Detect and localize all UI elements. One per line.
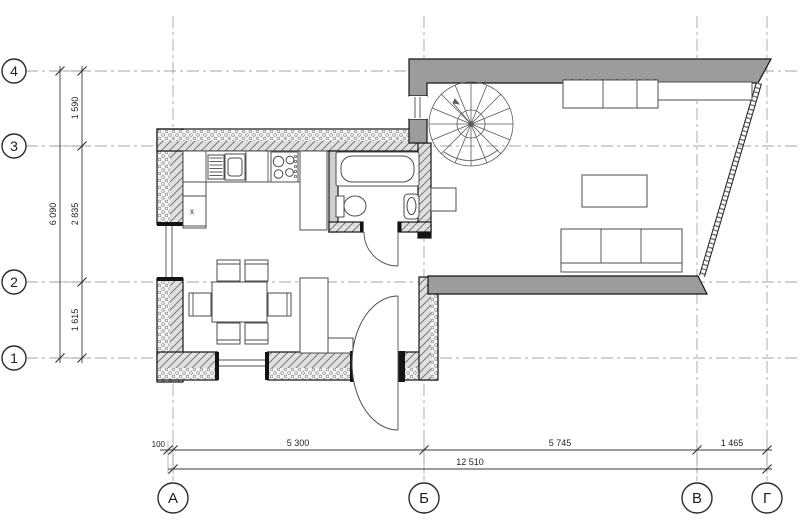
glazed-wall-tick-band [702,83,759,276]
toilet-tank [336,196,344,217]
bathroom-east-wall-cap [418,232,431,238]
spiral-stair-arrow-line [453,103,471,124]
living-room-furniture [431,80,752,272]
axis-label-4: 4 [10,63,18,79]
stove-burner-3 [274,170,283,179]
toilet-bowl [344,196,366,216]
entry-bench [328,338,353,353]
wall-shelf [431,188,456,211]
wall-top-hatch [157,141,420,151]
axis-label-v: В [692,490,702,507]
window-west-gap [156,225,185,278]
bathroom [329,143,431,266]
dim-h-seg-3: 1 465 [721,438,744,448]
floor-plan-svg: x [0,0,800,530]
dining-chair-right [268,293,291,316]
dim-h-offset: 100 [152,440,166,449]
entry-wardrobe [300,278,328,353]
dining-chair-bottom-1 [217,323,240,344]
bathroom-wall-south-right [398,222,431,232]
bathroom-door-arc [364,232,398,266]
axis-label-g: Г [763,490,771,507]
dim-h-seg-1: 5 300 [287,438,310,448]
sofa [561,229,682,272]
floor-plan-canvas: x [0,0,800,530]
entry-door-jamb-right [399,351,406,382]
stove-burner-1 [273,156,283,166]
bathroom-door-jamb-left [360,222,364,232]
window-west-cap-top [157,222,183,226]
bathroom-door-jamb-right [398,222,402,232]
dining-table [212,282,267,322]
dimensions-left: 6 090 1 590 2 835 1 615 [48,66,90,363]
wall-living-south [428,276,707,294]
sink-basin-inner [228,158,242,176]
axis-label-a: А [168,490,178,507]
dimensions-bottom: 100 5 300 5 745 1 465 12 510 [152,438,772,474]
coffee-table [582,175,647,207]
axis-label-2: 2 [10,274,18,290]
stove-burner-2 [286,156,294,164]
glazed-wall-outer-line [705,84,762,277]
wall-living-west-lower [409,119,427,143]
window-living-west-gap [409,96,427,119]
dining-chair-top-1 [217,260,240,281]
axis-label-b: Б [419,490,429,507]
dim-v-seg-bot: 1 615 [70,309,80,332]
wall-top-insulation [157,130,420,141]
dim-v-total: 6 090 [48,203,58,226]
dishwasher-mark: x [190,207,194,216]
sideboard [563,80,658,108]
window-west-cap-bottom [157,277,183,281]
dishwasher-box [183,196,206,226]
kitchen: x [183,151,327,230]
fridge-cabinet [300,151,327,230]
axis-label-3: 3 [10,138,18,154]
dining-chair-left [189,293,211,316]
dining-chair-bottom-2 [245,323,268,344]
washbasin-bowl [407,198,416,215]
entry-door-swing [352,296,398,430]
bathtub-inner [341,156,414,182]
glazed-wall [700,82,762,276]
dining-set [189,260,291,344]
dim-h-seg-2: 5 745 [549,438,572,448]
window-south-cap-right [265,352,269,380]
stove-burner-4 [286,169,294,177]
console-shelf [658,82,752,100]
axis-label-1: 1 [10,350,18,366]
dining-chair-top-2 [245,260,268,281]
spiral-stair-arrow-head [453,99,459,104]
spiral-staircase [429,82,513,166]
dim-v-seg-top: 1 590 [70,97,80,120]
glazed-wall-inner-line [700,82,757,275]
dim-h-total: 12 510 [456,457,484,467]
window-south-cap-left [215,352,219,380]
dim-v-seg-mid: 2 835 [70,203,80,226]
bathroom-wall-south-left [329,222,363,232]
